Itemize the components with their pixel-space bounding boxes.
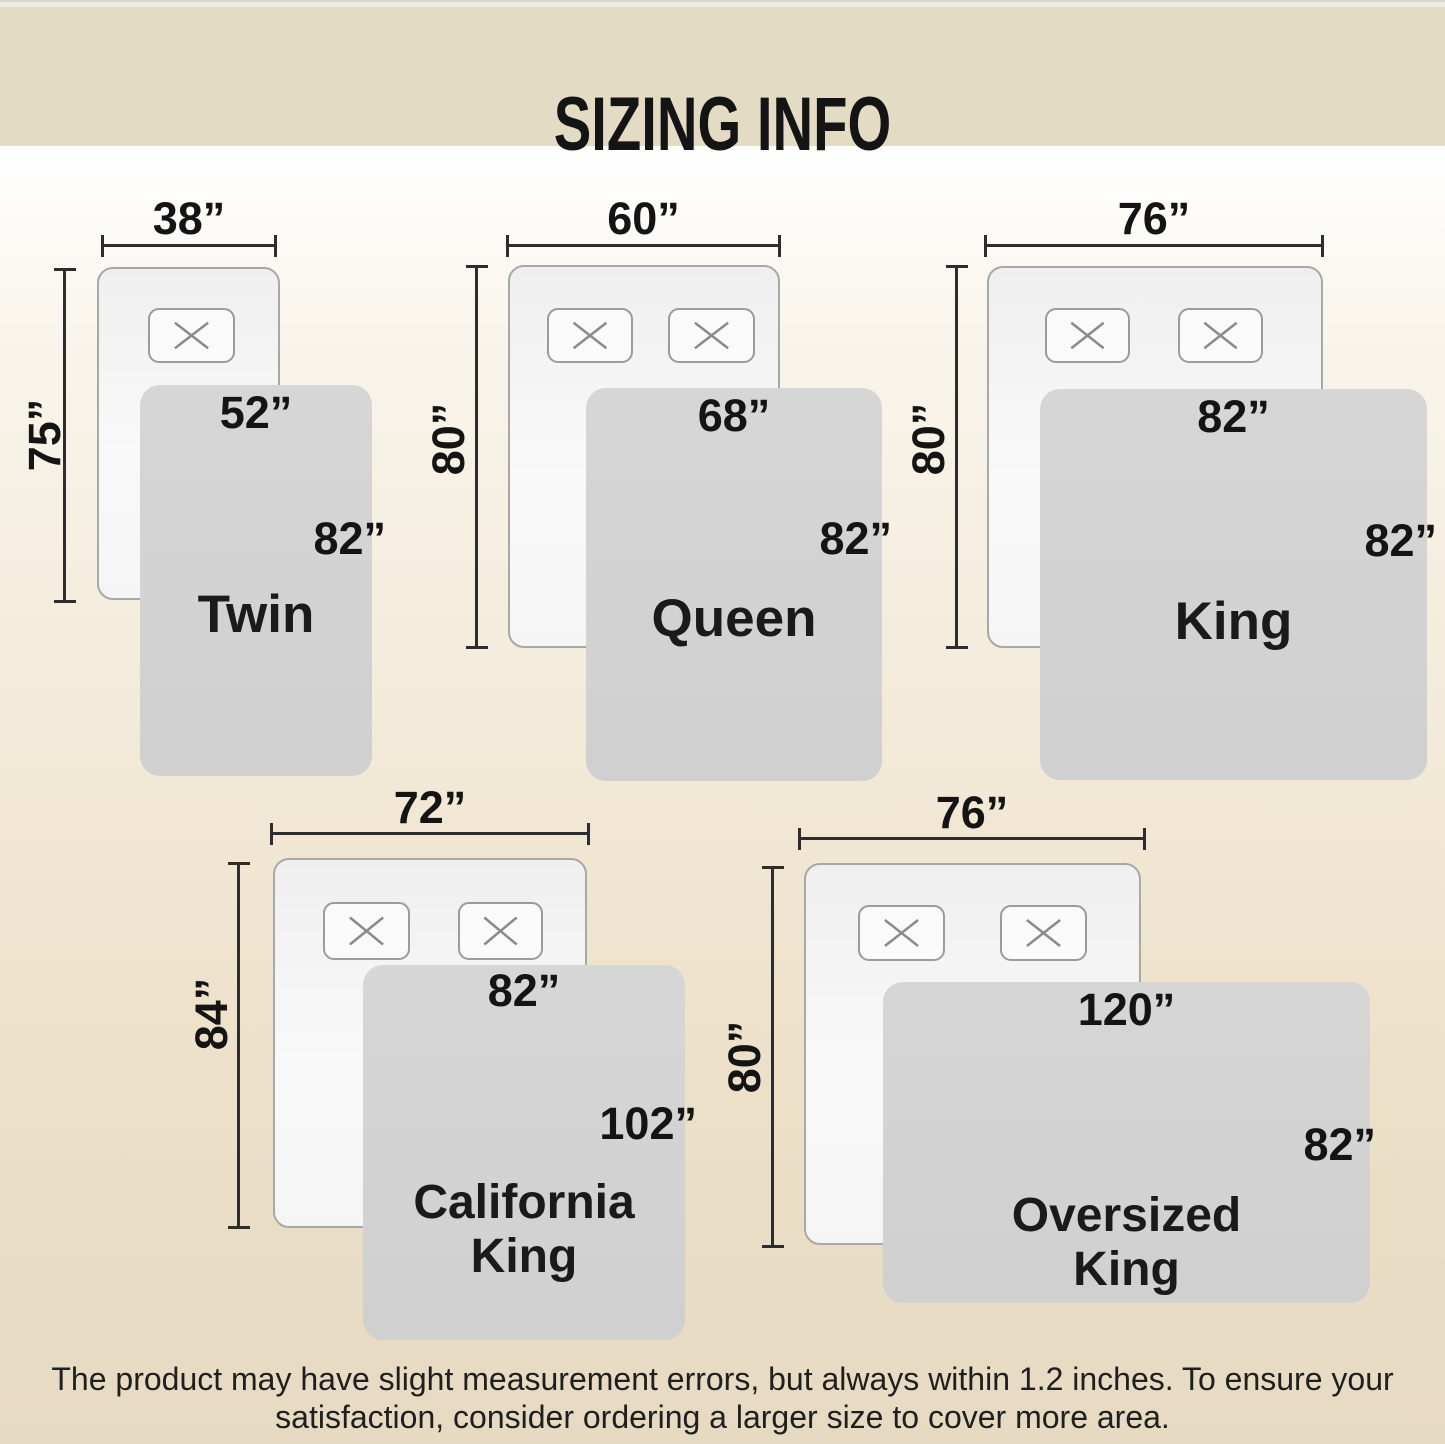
blanket-length-label: 82” [1303,1119,1376,1171]
pillow-icon [858,905,945,961]
pillow-cross-icon [1047,310,1128,361]
pillow-cross-icon [460,904,541,958]
dim-tick [54,600,76,603]
blanket-length-label: 102” [599,1098,697,1150]
dim-tick [466,265,488,268]
bed-width-label: 76” [799,787,1145,839]
length-dimension-line [955,266,958,648]
pillow-cross-icon [549,310,631,361]
blanket-size-name: Twin [140,588,372,642]
blanket: 52” 82” Twin [140,385,372,776]
blanket-width-label: 120” [883,984,1370,1036]
page-title: SIZING INFO [188,85,1257,165]
pillow-icon [323,902,410,960]
blanket-width-label: 82” [1040,391,1427,443]
blanket-width-label: 82” [363,965,685,1017]
pillow-cross-icon [150,310,233,361]
bed-width-label: 38” [102,193,276,245]
dim-tick [54,268,76,271]
pillow-cross-icon [670,310,753,361]
disclaimer: The product may have slight measurement … [0,1360,1445,1436]
disclaimer-line-1: The product may have slight measurement … [0,1360,1445,1398]
dim-tick [762,1245,784,1248]
disclaimer-line-2: satisfaction, consider ordering a larger… [0,1398,1445,1436]
blanket: 82” 102” California King [363,965,685,1340]
dim-tick [946,646,968,649]
pillow-icon [1000,905,1087,961]
bed-width-label: 72” [271,782,589,834]
blanket-size-name: King [1040,595,1427,649]
length-dimension-line [475,266,478,648]
blanket-size-name: California King [359,1176,689,1284]
dim-tick [762,866,784,869]
bed-length-label: 84” [186,978,238,1051]
pillow-icon [458,902,543,960]
blanket-width-label: 52” [140,387,372,439]
bed-length-label: 80” [903,403,955,476]
bed-width-label: 76” [985,193,1323,245]
pillow-cross-icon [325,904,408,958]
blanket-length-label: 82” [313,513,386,565]
dim-tick [466,646,488,649]
blanket: 68” 82” Queen [586,388,882,781]
pillow-icon [668,308,755,363]
blanket-size-name: Queen [586,592,882,646]
blanket: 120” 82” Oversized King [883,982,1370,1303]
pillow-icon [1178,308,1263,363]
dim-tick [946,265,968,268]
pillow-icon [148,308,235,363]
bed-width-label: 60” [507,193,780,245]
bed-length-label: 75” [19,399,71,472]
blanket: 82” 82” King [1040,389,1427,780]
pillow-icon [1045,308,1130,363]
sizing-info-graphic: SIZING INFO 38” 75” 52” 82” Twin [0,0,1445,1444]
blanket-length-label: 82” [1364,515,1437,567]
bed-length-label: 80” [423,403,475,476]
blanket-length-label: 82” [819,513,892,565]
pillow-cross-icon [860,907,943,959]
pillow-icon [547,308,633,363]
dim-tick [228,1226,250,1229]
pillow-cross-icon [1180,310,1261,361]
pillow-cross-icon [1002,907,1085,959]
bed-length-label: 80” [719,1021,771,1094]
blanket-width-label: 68” [586,390,882,442]
length-dimension-line [771,867,774,1247]
dim-tick [228,862,250,865]
blanket-size-name: Oversized King [962,1189,1292,1297]
